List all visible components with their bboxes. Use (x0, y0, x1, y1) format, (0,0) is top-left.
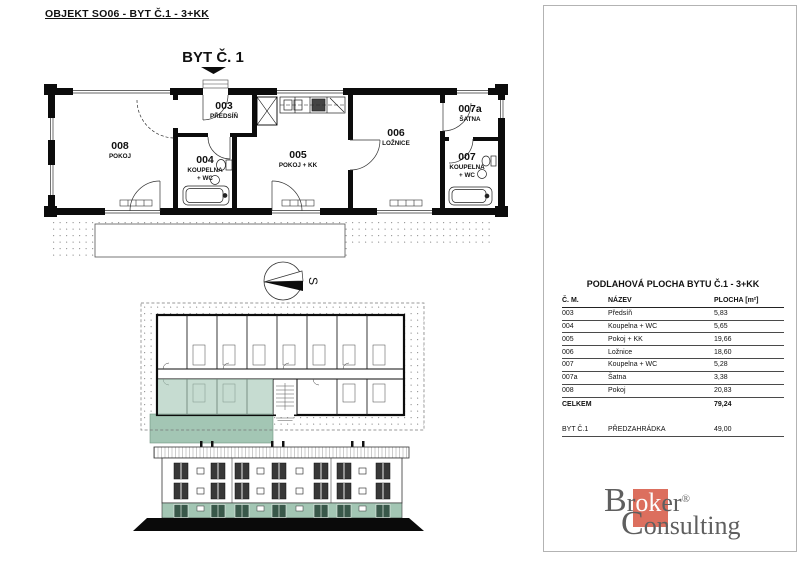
table-row: 004 Koupelna + WC 5,65 (562, 321, 784, 334)
room-name: KOUPELNA (187, 167, 223, 174)
room-name: PŘEDSÍŇ (210, 111, 238, 120)
terrace-outline (95, 224, 345, 257)
area-table: PODLAHOVÁ PLOCHA BYTU Č.1 - 3+KK Č. M. N… (562, 279, 784, 437)
room-name: KOUPELNA (449, 164, 485, 171)
ground-line (133, 518, 424, 531)
unit-pointer-icon (201, 67, 226, 74)
table-row: 008 Pokoj 20,83 (562, 385, 784, 398)
table-row: 003 Předsíň 5,83 (562, 308, 784, 321)
logo-line2: Consulting (621, 507, 740, 541)
room-number: 004 (196, 154, 214, 166)
radiators (120, 200, 422, 206)
room-number: 008 (111, 140, 129, 152)
page: OBJEKT SO06 - BYT Č.1 - 3+KK BYT Č. 1 (0, 0, 800, 564)
room-name: POKOJ (109, 153, 132, 160)
unit-label: BYT Č. 1 (182, 48, 244, 66)
room-name: POKOJ + KK (279, 162, 318, 169)
ground-floor-band (162, 503, 402, 518)
building-elevation (133, 441, 424, 531)
kitchen-counter (280, 97, 345, 113)
room-number: 007a (458, 103, 482, 115)
plan-compass: S (264, 262, 320, 300)
table-row: 005 Pokoj + KK 19,66 (562, 333, 784, 346)
building-ground-plan (141, 303, 424, 443)
table-header: Č. M. NÁZEV PLOCHA [m²] (562, 295, 784, 308)
table-row: 007a Šatna 3,38 (562, 372, 784, 385)
col-area: PLOCHA [m²] (714, 297, 784, 305)
staircase (273, 379, 297, 421)
room-number: 007 (458, 151, 476, 163)
room-number: 003 (215, 100, 233, 112)
table-row: 006 Ložnice 18,60 (562, 346, 784, 359)
col-number: Č. M. (562, 297, 608, 305)
table-row: 007 Koupelna + WC 5,28 (562, 359, 784, 372)
room-name: ŠATNA (459, 114, 481, 123)
registered-mark: ® (682, 493, 690, 505)
table-title: PODLAHOVÁ PLOCHA BYTU Č.1 - 3+KK (562, 279, 784, 289)
room-labels: 008 POKOJ 003 PŘEDSÍŇ 004 KOUPELNA + WC … (109, 100, 485, 182)
table-total-row: CELKEM 79,24 (562, 398, 784, 411)
room-name: + WC (459, 172, 475, 179)
room-number: 005 (289, 149, 307, 161)
total-label: CELKEM (562, 401, 608, 409)
front-garden-highlight (150, 414, 273, 443)
apartment-highlight (158, 379, 273, 415)
total-value: 79,24 (714, 401, 784, 409)
roof (154, 447, 409, 458)
broker-consulting-logo: Broker® Consulting (598, 486, 794, 548)
compass-label: S (306, 277, 320, 285)
room-name: LOŽNICE (382, 138, 410, 147)
room-number: 006 (387, 127, 405, 139)
room-name: + WC (197, 175, 213, 182)
shaft (257, 97, 277, 125)
col-name: NÁZEV (608, 297, 714, 305)
apartment-floor-plan: BYT Č. 1 (44, 48, 508, 300)
table-extra-row: BYT Č.1 PŘEDZAHRÁDKA 49,00 (562, 424, 784, 437)
